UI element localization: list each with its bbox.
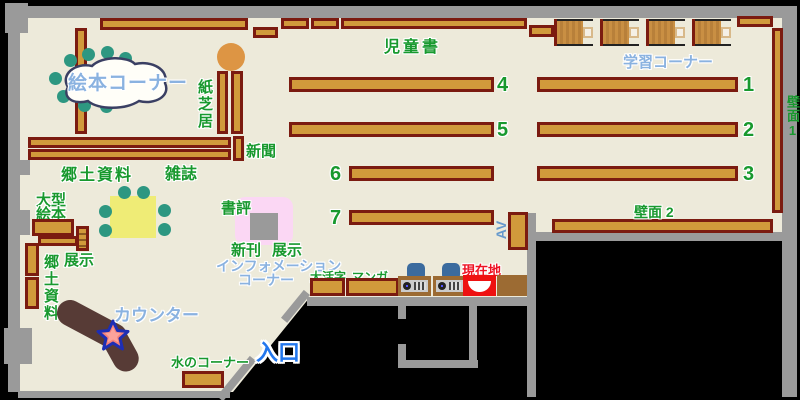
large-book-shelf-b bbox=[38, 236, 78, 246]
magazine-label: 雑誌 bbox=[165, 160, 197, 184]
counter-label: カウンター bbox=[114, 301, 199, 326]
childrens-books-label: 児童書 bbox=[384, 33, 441, 57]
bookshelf-1 bbox=[537, 77, 738, 92]
chair bbox=[158, 223, 171, 236]
large-book-shelf-a bbox=[32, 219, 74, 236]
shelf-number-4: 4 bbox=[497, 74, 508, 97]
wall-shelf-2-label: 壁面 2 bbox=[634, 202, 674, 222]
shelf-number-2: 2 bbox=[743, 119, 754, 142]
newspaper-shelf bbox=[233, 136, 244, 161]
av-label: AV bbox=[493, 221, 509, 239]
bookshelf-6 bbox=[349, 166, 494, 181]
bookshelf-2 bbox=[537, 122, 738, 137]
display-left-label: 展示 bbox=[64, 249, 94, 270]
wall-shelf-1-label: 壁面1 bbox=[783, 95, 800, 139]
chair bbox=[118, 186, 131, 199]
kamishibai-shelf-2 bbox=[231, 71, 243, 134]
wall-shelf-1 bbox=[772, 28, 783, 213]
bookshelf-4 bbox=[289, 77, 494, 92]
newspaper-label: 新聞 bbox=[246, 140, 276, 161]
terminal-chair bbox=[407, 263, 425, 277]
wall-top-left-block bbox=[5, 3, 28, 33]
chair bbox=[99, 224, 112, 237]
local-shelf-b bbox=[25, 277, 39, 309]
study-carrel bbox=[646, 19, 685, 46]
wall-top bbox=[28, 6, 782, 18]
display-stand bbox=[76, 226, 89, 251]
water-corner-shelf bbox=[182, 371, 224, 388]
wall-left-pillar-2 bbox=[8, 210, 30, 235]
terminal-station bbox=[398, 263, 431, 296]
current-location-marker bbox=[463, 275, 496, 296]
top-wall-shelf-e bbox=[341, 18, 527, 29]
magazine-shelf-lower bbox=[28, 149, 231, 160]
carrel-chair bbox=[583, 27, 593, 38]
carrel-chair bbox=[721, 27, 731, 38]
entrance-label: 入口 bbox=[256, 335, 300, 367]
display-table-gray bbox=[250, 213, 278, 240]
wall-right bbox=[782, 6, 797, 397]
shelf-number-5: 5 bbox=[497, 119, 508, 142]
wall-left-pillar-3 bbox=[4, 328, 32, 364]
top-wall-shelf-a bbox=[100, 18, 248, 30]
manga-shelf bbox=[346, 278, 399, 296]
top-wall-shelf-b bbox=[253, 27, 278, 38]
bookshelf-5 bbox=[289, 122, 494, 137]
chair bbox=[137, 186, 150, 199]
round-table bbox=[217, 43, 245, 71]
study-carrel bbox=[692, 19, 731, 46]
stairwell-wall-bottom bbox=[398, 360, 478, 368]
shelf-number-1: 1 bbox=[743, 74, 754, 97]
kamishibai-label: 紙芝居 bbox=[194, 79, 215, 130]
magazine-shelf-upper bbox=[28, 137, 231, 148]
book-review-label: 書評 bbox=[221, 197, 251, 218]
bookshelf-3 bbox=[537, 166, 738, 181]
study-carrel bbox=[554, 19, 593, 46]
wall-right-section-bottom bbox=[535, 232, 782, 241]
av-shelf bbox=[508, 212, 528, 250]
stairwell-wall-left-a bbox=[398, 305, 406, 319]
top-wall-shelf-c bbox=[281, 18, 309, 29]
picture-corner-label: 絵本コーナー bbox=[68, 68, 188, 95]
local-shelf-a bbox=[25, 243, 39, 276]
wall-bottom-left bbox=[18, 391, 230, 398]
reading-table bbox=[110, 196, 156, 238]
large-print-shelf bbox=[310, 278, 345, 296]
wall-left-pillar-1 bbox=[8, 160, 30, 175]
bookshelf-7 bbox=[349, 210, 494, 225]
stairwell-wall-right bbox=[469, 305, 477, 368]
kamishibai-shelf-1 bbox=[217, 71, 228, 134]
top-wall-shelf-d bbox=[311, 18, 339, 29]
chair bbox=[158, 204, 171, 217]
information-corner-label-2: コーナー bbox=[238, 270, 294, 290]
wall-terminal-row-bottom bbox=[307, 297, 529, 306]
top-right-corner-shelf bbox=[737, 16, 773, 27]
chair bbox=[99, 205, 112, 218]
study-carrel bbox=[600, 19, 639, 46]
carrel-chair bbox=[629, 27, 639, 38]
shelf-number-7: 7 bbox=[330, 207, 341, 230]
library-floor-map: 絵本コーナー 紙芝居 新聞 郷土資料 雑誌 大型 絵本 展示 郷土資料 児童書 … bbox=[0, 0, 800, 400]
water-corner-label: 水のコーナー bbox=[171, 352, 249, 371]
shelf-number-3: 3 bbox=[743, 163, 754, 186]
study-corner-label: 学習コーナー bbox=[623, 51, 713, 72]
local-materials-label: 郷土資料 bbox=[61, 161, 133, 185]
carrel-chair bbox=[675, 27, 685, 38]
shelf-next-to-marker bbox=[497, 275, 527, 296]
terminal-chair bbox=[442, 263, 460, 277]
shelf-number-6: 6 bbox=[330, 163, 341, 186]
top-wall-shelf-f bbox=[529, 25, 554, 37]
